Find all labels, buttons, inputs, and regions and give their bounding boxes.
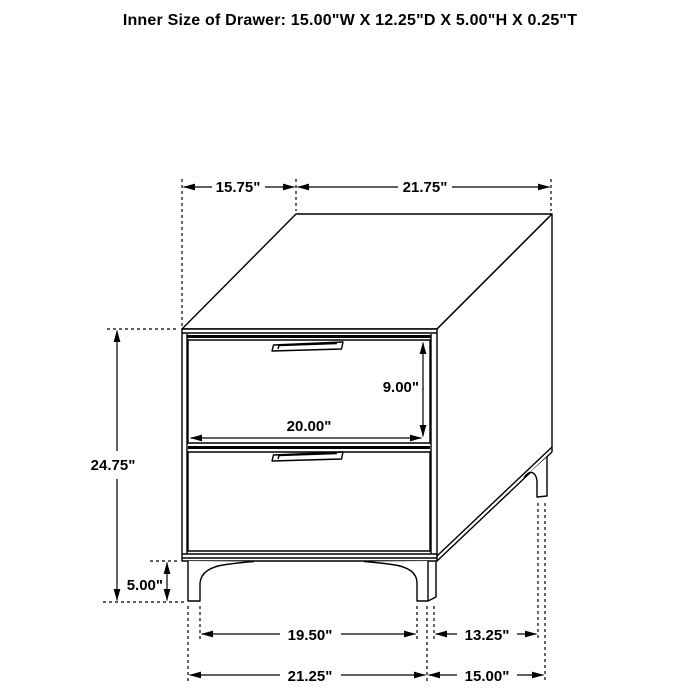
label-drawer-front-height: 9.00" <box>383 379 419 396</box>
label-leg-height: 5.00" <box>127 577 163 594</box>
label-base-front-inner-span: 19.50" <box>288 627 333 644</box>
label-overall-height: 24.75" <box>91 457 136 474</box>
label-base-front-outer-span: 21.25" <box>288 668 333 685</box>
nightstand-top-surface <box>182 214 552 329</box>
drawer-2-front <box>188 452 430 551</box>
label-base-side-outer-span: 15.00" <box>465 668 510 685</box>
front-left-leg <box>188 561 254 601</box>
label-top-depth: 15.75" <box>216 179 261 196</box>
label-top-width: 21.75" <box>403 179 448 196</box>
label-drawer-front-width: 20.00" <box>287 418 332 435</box>
diagram-page: Inner Size of Drawer: 15.00"W X 12.25"D … <box>0 0 700 700</box>
front-right-leg <box>364 561 428 601</box>
front-right-leg-side-face <box>428 561 436 601</box>
nightstand <box>182 214 552 601</box>
side-panel-bottom-edge-upper <box>437 447 552 556</box>
label-base-side-inner-span: 13.25" <box>465 627 510 644</box>
nightstand-dimension-drawing: 15.75" 21.75" 24.75" 5.00" 9.00" 20.00" … <box>0 0 700 700</box>
